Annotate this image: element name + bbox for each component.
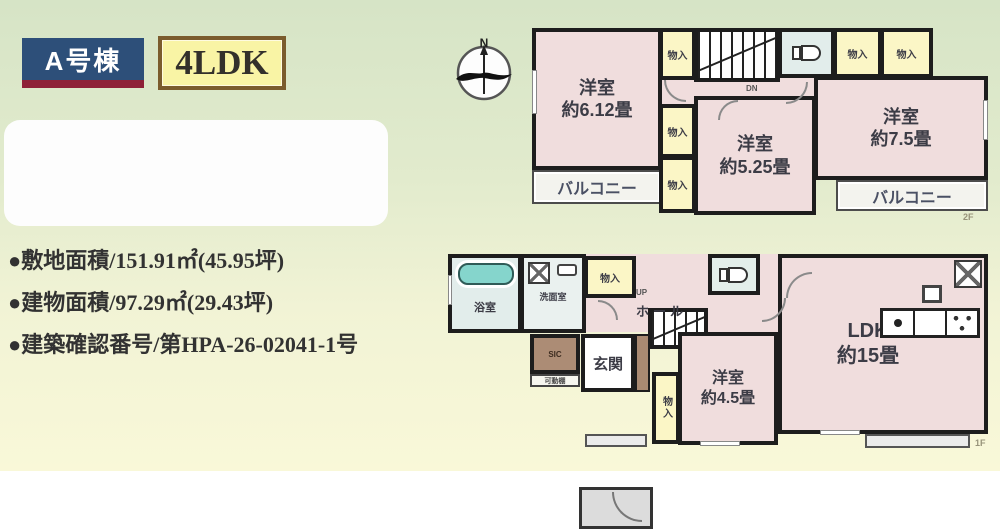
floor2-balcony-right-label: バルコニー [872, 184, 952, 208]
floor1-entrance: 玄関 [581, 334, 635, 392]
floor2-closet-5: 物入 [659, 156, 696, 213]
floor1-terrace-step [865, 434, 970, 448]
floor2-tag: 2F [963, 212, 974, 222]
window-mark [532, 70, 537, 114]
floor1-closet: 物入 [584, 256, 636, 298]
floor1-sic: SIC [530, 334, 580, 374]
entrance-label: 玄関 [593, 353, 623, 374]
compass-n-label: N [480, 36, 489, 50]
floor2-bedroom-525: 洋室 約5.25畳 [694, 96, 816, 215]
kitchen-counter [880, 308, 980, 338]
floor1-tag: 1F [975, 438, 986, 448]
closet-label: 物入 [600, 270, 620, 285]
compass-north-icon: N [452, 36, 516, 104]
floor2-bedroom-525-label: 洋室 約5.25畳 [719, 133, 790, 178]
shelf-label: 可動棚 [545, 376, 566, 386]
floor2-closet-2: 物入 [833, 28, 882, 78]
door-arc [786, 272, 812, 298]
hall-label: ホール [636, 301, 687, 320]
floor2-stairs-dn-label: DN [746, 84, 758, 93]
property-details: ●敷地面積/151.91㎡(45.95坪) ●建物面積/97.29㎡(29.43… [8, 243, 438, 359]
floor1-toilet [708, 254, 760, 295]
floor1-closet-vertical: 物入 [652, 372, 680, 444]
site-area-text: ●敷地面積/151.91㎡(45.95坪) [8, 243, 438, 275]
toilet-icon [719, 267, 749, 283]
layout-badge: 4LDK [158, 36, 286, 90]
blank-price-panel [4, 120, 388, 226]
floor2-stairs [694, 28, 780, 82]
closet-label: 物入 [848, 46, 868, 61]
kitchen-equipment-icon [922, 285, 942, 303]
building-badge: A号棟 [22, 38, 144, 88]
washroom-label: 洗面室 [524, 290, 582, 303]
floor2-closet-1: 物入 [659, 28, 696, 80]
stove-icon [945, 311, 977, 335]
building-area-text: ●建物面積/97.29㎡(29.43坪) [8, 285, 438, 317]
closet-label: 物入 [668, 124, 688, 139]
building-badge-label: A号棟 [45, 41, 122, 78]
property-flyer: A号棟 4LDK ●敷地面積/151.91㎡(45.95坪) ●建物面積/97.… [0, 0, 1000, 471]
floor2-bedroom-75-label: 洋室 約7.5畳 [870, 106, 931, 151]
kitchen-counter-gap [915, 311, 945, 335]
window-mark [448, 275, 452, 305]
floor2-balcony-left: バルコニー [532, 170, 662, 204]
window-mark [820, 430, 860, 435]
floor1-shelf: 可動棚 [530, 374, 580, 387]
floor1-stairs-up-label: UP [636, 288, 647, 297]
kitchen-sink-icon [883, 311, 915, 335]
sic-label: SIC [548, 350, 561, 359]
toilet-icon [792, 45, 822, 61]
layout-badge-label: 4LDK [175, 43, 268, 83]
bathroom-label: 浴室 [452, 299, 518, 315]
floor2-balcony-right: バルコニー [836, 180, 988, 211]
floor2-bedroom-612: 洋室 約6.12畳 [532, 28, 662, 170]
window-mark [700, 441, 740, 446]
floor1-porch [579, 487, 653, 529]
refrigerator-space-icon [954, 260, 982, 288]
window-mark [983, 100, 988, 140]
floor1-entry-step [585, 434, 647, 447]
floor2-bedroom-75: 洋室 約7.5畳 [814, 76, 988, 180]
closet-label: 物入 [668, 177, 688, 192]
floor1-bedroom-45: 洋室 約4.5畳 [678, 332, 778, 445]
floor2-closet-3: 物入 [880, 28, 933, 78]
entrance-door-arc [612, 492, 642, 522]
floor1-shoe-cabinet [635, 334, 650, 392]
floor1-bathroom: 浴室 [448, 254, 522, 333]
closet-label: 物入 [668, 47, 688, 62]
bathtub-icon [458, 263, 514, 285]
closet-label: 物入 [897, 46, 917, 61]
floor1-washroom: 洗面室 [520, 254, 586, 333]
washing-machine-icon [528, 262, 550, 284]
sink-icon [557, 264, 577, 276]
floor2-closet-4: 物入 [659, 104, 696, 158]
floor2-balcony-left-label: バルコニー [557, 175, 637, 199]
floor2-toilet [778, 28, 835, 78]
floor1-ldk: LDK 約15畳 [778, 254, 988, 434]
floor1-bedroom-45-label: 洋室 約4.5畳 [701, 369, 755, 409]
floor2-bedroom-612-label: 洋室 約6.12畳 [561, 77, 632, 122]
confirmation-number-text: ●建築確認番号/第HPA-26-02041-1号 [8, 327, 438, 359]
closet-label: 物入 [659, 396, 674, 420]
